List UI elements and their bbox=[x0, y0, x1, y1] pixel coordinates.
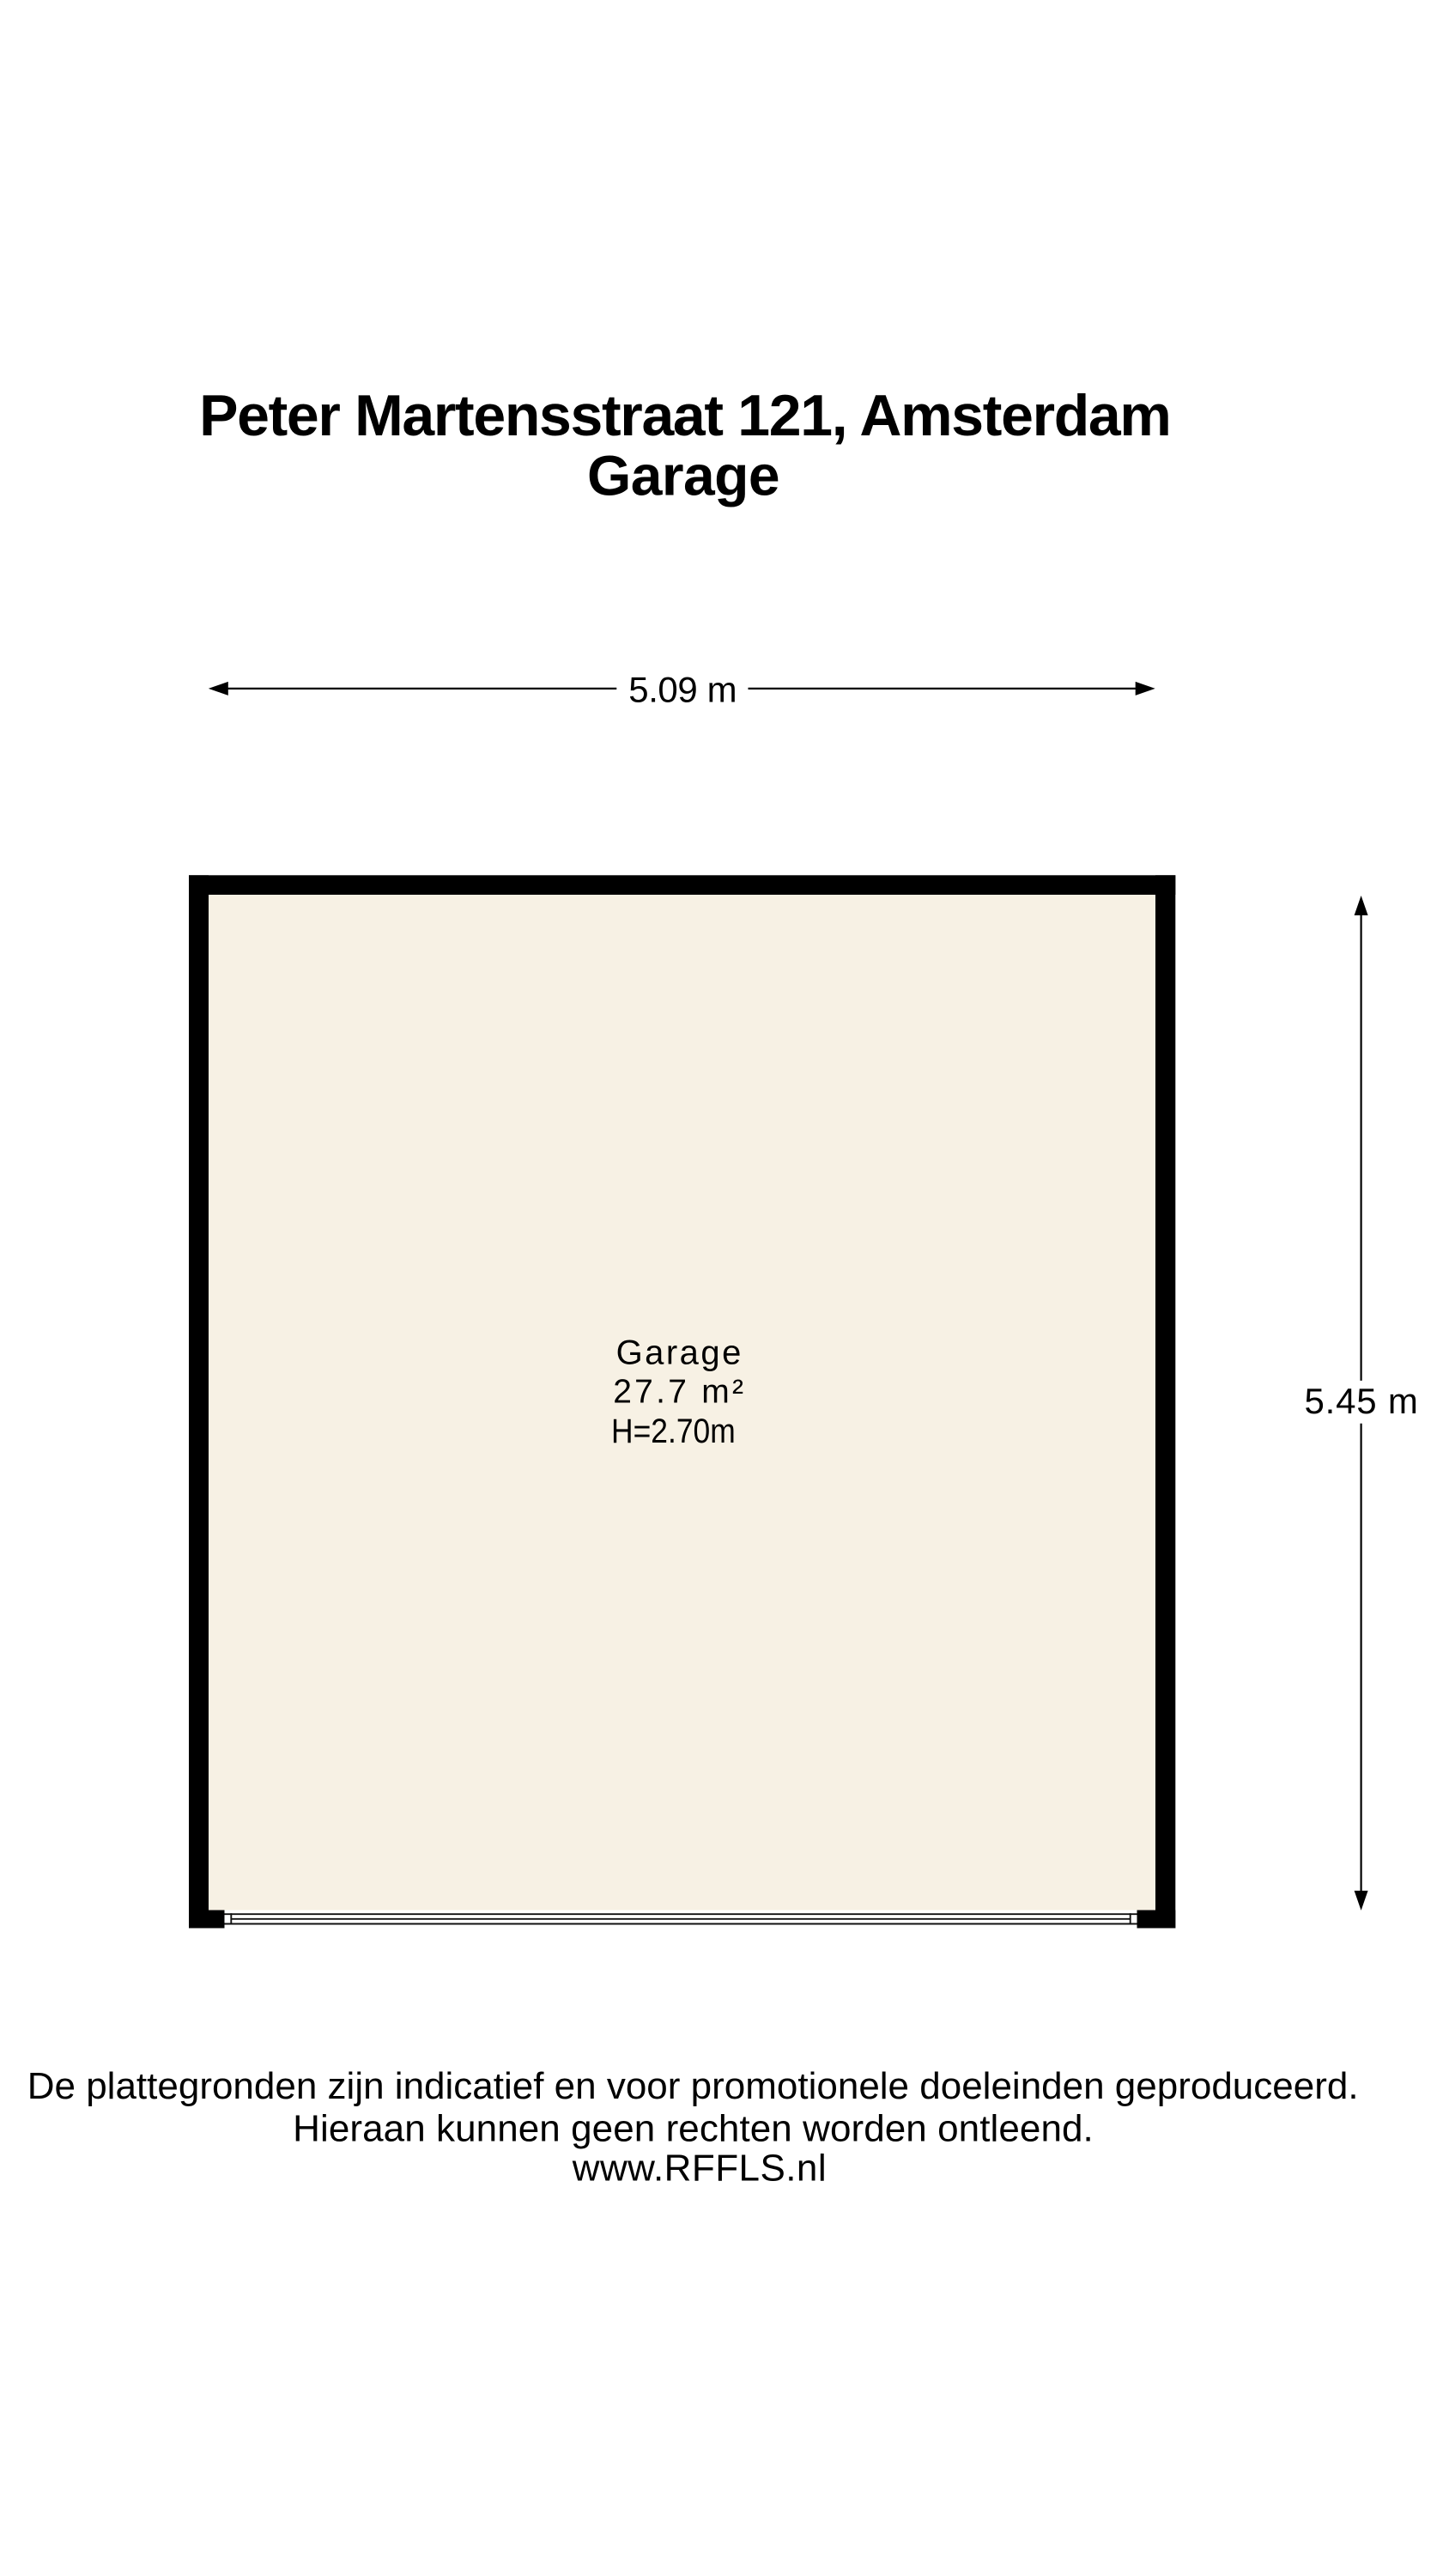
svg-text:27.7 m²: 27.7 m² bbox=[613, 1373, 746, 1410]
svg-text:De plattegronden zijn indicati: De plattegronden zijn indicatief en voor… bbox=[27, 2065, 1359, 2107]
svg-text:Hieraan kunnen geen rechten wo: Hieraan kunnen geen rechten worden ontle… bbox=[293, 2108, 1094, 2150]
svg-text:H=2.70m: H=2.70m bbox=[611, 1412, 736, 1449]
svg-text:Peter Martensstraat 121, Amste: Peter Martensstraat 121, Amsterdam bbox=[199, 383, 1170, 448]
svg-text:Garage: Garage bbox=[616, 1334, 743, 1372]
svg-text:www.RFFLS.nl: www.RFFLS.nl bbox=[572, 2148, 827, 2190]
svg-text:5.45 m: 5.45 m bbox=[1304, 1381, 1418, 1421]
svg-text:5.09 m: 5.09 m bbox=[628, 669, 737, 709]
svg-text:Garage: Garage bbox=[587, 444, 779, 507]
